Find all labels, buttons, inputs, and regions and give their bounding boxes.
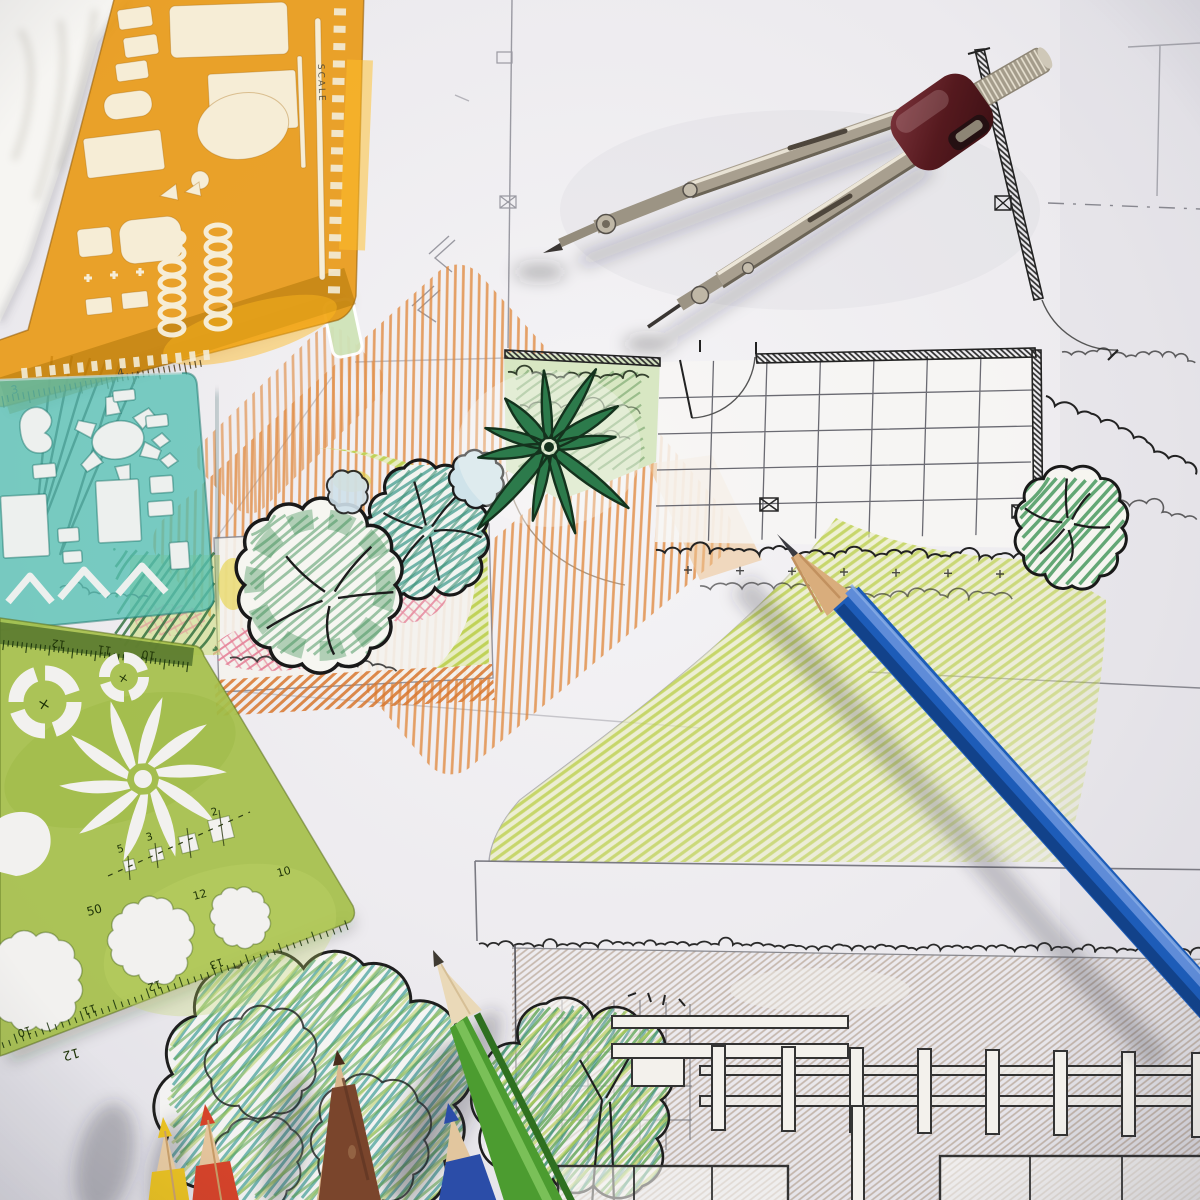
- green-ruler-number: 12: [51, 636, 66, 651]
- teal-template: [0, 373, 218, 632]
- scale-label: SCALE: [315, 64, 326, 103]
- green-ruler-number: 11: [97, 642, 112, 657]
- gear-cutout-partial: [0, 931, 83, 1031]
- patio-grid: [655, 354, 1038, 548]
- photo-canvas: 3 4 SCALE 12 11 10 × ×: [0, 0, 1200, 1200]
- photo-svg: 3 4 SCALE 12 11 10 × ×: [0, 0, 1200, 1200]
- bean-cutout: [20, 407, 52, 453]
- green-ruler-number: 10: [141, 647, 156, 662]
